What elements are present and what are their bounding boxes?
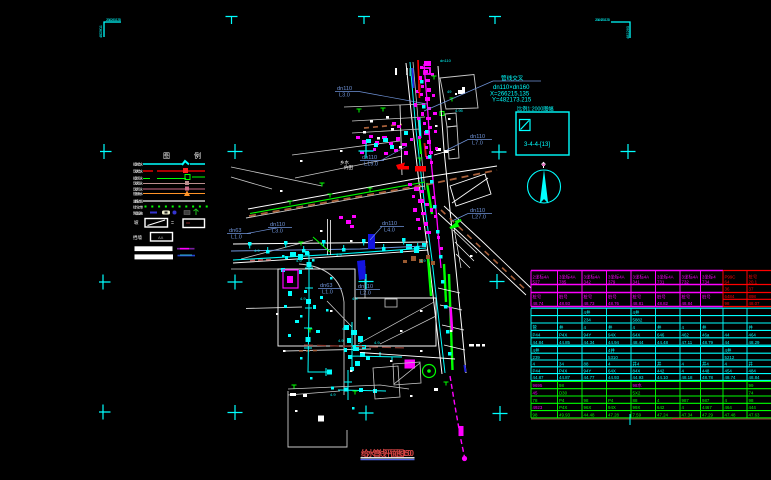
svg-text:4井: 4井 [633, 309, 640, 316]
svg-text:P4X: P4X [559, 405, 567, 410]
svg-text:P44: P44 [533, 368, 541, 373]
svg-text:47.28: 47.28 [608, 412, 620, 417]
svg-text:约田: 约田 [344, 164, 353, 171]
svg-text:L7.0: L7.0 [472, 141, 483, 147]
svg-text:48.76: 48.76 [608, 301, 620, 306]
svg-text:L3.0: L3.0 [272, 229, 283, 235]
svg-text:dn110: dn110 [470, 134, 485, 140]
svg-text:48.79: 48.79 [702, 340, 714, 345]
svg-text:464: 464 [749, 332, 757, 337]
svg-text:井4: 井4 [702, 361, 709, 368]
svg-text:98: 98 [725, 301, 730, 306]
svg-text:88: 88 [633, 398, 638, 403]
svg-text:646: 646 [657, 332, 665, 337]
svg-text:L27.0: L27.0 [472, 215, 486, 221]
svg-text:L19.0: L19.0 [364, 162, 378, 168]
svg-text:48.84: 48.84 [682, 301, 694, 306]
svg-text:4.9: 4.9 [296, 258, 302, 263]
svg-text:7.59: 7.59 [633, 412, 642, 417]
svg-text:734: 734 [702, 280, 710, 285]
svg-text:94Y: 94Y [584, 332, 592, 337]
svg-text:桩号: 桩号 [633, 294, 642, 301]
svg-text:给水管线平面图1:500: 给水管线平面图1:500 [361, 448, 415, 458]
svg-text:98: 98 [749, 398, 754, 403]
svg-text:规划雨水: 规划雨水 [133, 191, 143, 196]
svg-text:84X: 84X [633, 368, 641, 373]
svg-text:47.11: 47.11 [682, 340, 693, 345]
svg-text:4.9: 4.9 [254, 248, 260, 253]
svg-text:桩号: 桩号 [584, 294, 593, 301]
svg-text:47.24: 47.24 [657, 412, 669, 417]
svg-text:44.87: 44.87 [533, 375, 545, 380]
svg-text:48.73: 48.73 [584, 301, 596, 306]
svg-text:444: 444 [749, 405, 757, 410]
svg-text:44.77: 44.77 [584, 375, 596, 380]
svg-text:规划给水: 规划给水 [133, 162, 143, 167]
svg-text:P44: P44 [533, 332, 541, 337]
svg-text:44.48: 44.48 [657, 340, 669, 345]
svg-text:732: 732 [682, 280, 690, 285]
svg-text:64X: 64X [608, 368, 616, 373]
svg-text:98: 98 [533, 412, 538, 417]
svg-text:挡墙: 挡墙 [133, 234, 142, 241]
svg-text:井: 井 [749, 324, 754, 331]
svg-text:3-4-4-[13]: 3-4-4-[13] [524, 142, 550, 148]
svg-text:48.29: 48.29 [749, 340, 761, 345]
svg-text:785: 785 [559, 280, 567, 285]
svg-text:现状污水: 现状污水 [133, 187, 143, 192]
svg-text:dn63: dn63 [320, 283, 332, 289]
svg-text:482260: 482260 [625, 25, 630, 39]
svg-text:dn110: dn110 [337, 86, 352, 92]
svg-text:44.34: 44.34 [584, 340, 596, 345]
svg-text:47.48: 47.48 [725, 412, 737, 417]
svg-text:4467: 4467 [702, 405, 712, 410]
svg-text:88: 88 [584, 362, 589, 367]
svg-text:37: 37 [749, 287, 754, 292]
svg-text:266240.135: 266240.135 [106, 17, 122, 22]
svg-text:47.34: 47.34 [682, 412, 694, 417]
svg-text:48.82: 48.82 [657, 301, 669, 306]
svg-text:239: 239 [533, 355, 541, 360]
svg-text:454: 454 [725, 368, 733, 373]
svg-text:桩号: 桩号 [608, 294, 617, 301]
svg-text:井: 井 [749, 361, 754, 368]
svg-text:48.74: 48.74 [725, 375, 737, 380]
svg-text:48.74: 48.74 [533, 301, 545, 306]
svg-text:78: 78 [533, 398, 538, 403]
svg-text:4井: 4井 [584, 309, 591, 316]
svg-text:P4: P4 [608, 398, 614, 403]
svg-text:4井: 4井 [533, 347, 540, 354]
svg-text:448: 448 [702, 368, 710, 373]
svg-text:342: 342 [584, 280, 592, 285]
svg-text:44.84: 44.84 [533, 340, 545, 345]
svg-text:44.48: 44.48 [584, 412, 596, 417]
svg-text:L4.0: L4.0 [384, 228, 395, 234]
svg-text:4.9: 4.9 [300, 296, 306, 301]
svg-text:桩号: 桩号 [682, 294, 691, 301]
svg-text:L2.0: L2.0 [360, 291, 371, 297]
svg-text:9695: 9695 [533, 383, 543, 388]
svg-text:47.63: 47.63 [749, 412, 761, 417]
svg-text:48.93: 48.93 [559, 301, 571, 306]
svg-text:D30: D30 [559, 391, 568, 396]
svg-text:527: 527 [533, 280, 541, 285]
svg-text:48.81: 48.81 [633, 301, 645, 306]
svg-text:L1.0: L1.0 [322, 290, 333, 296]
svg-text:987: 987 [682, 398, 690, 403]
svg-text:48.44: 48.44 [633, 340, 645, 345]
svg-text:dn63: dn63 [229, 228, 241, 234]
svg-text:dn110: dn110 [382, 221, 397, 227]
svg-text:44.93: 44.93 [633, 375, 645, 380]
svg-text:4.9: 4.9 [336, 252, 342, 257]
svg-text:46a: 46a [702, 332, 710, 337]
svg-text:464: 464 [725, 405, 733, 410]
svg-text:规划污水: 规划污水 [133, 176, 143, 181]
svg-text:绿化带: 绿化带 [133, 205, 143, 210]
svg-text:桩号: 桩号 [559, 294, 568, 301]
svg-text:98水: 98水 [633, 382, 643, 388]
svg-text:442: 442 [657, 368, 665, 373]
svg-text:道路边线: 道路边线 [133, 199, 143, 204]
svg-text:P4: P4 [559, 398, 565, 403]
svg-text:Y=482173.215: Y=482173.215 [492, 98, 532, 104]
svg-text:5X2: 5X2 [633, 391, 641, 396]
svg-text:桩号: 桩号 [702, 294, 711, 301]
svg-text:井: 井 [559, 324, 564, 331]
svg-text:96X: 96X [584, 405, 592, 410]
svg-text:4.9: 4.9 [338, 338, 344, 343]
svg-text:4923: 4923 [533, 405, 543, 410]
svg-text:4.9: 4.9 [352, 296, 358, 301]
svg-text:898: 898 [749, 294, 757, 299]
svg-text:49: 49 [447, 89, 452, 94]
svg-text:44: 44 [725, 332, 730, 337]
svg-text:44.87: 44.87 [559, 375, 571, 380]
svg-text:P4X: P4X [559, 368, 567, 373]
svg-text:48.18: 48.18 [682, 375, 694, 380]
svg-text:49.93: 49.93 [559, 412, 571, 417]
svg-text:642: 642 [657, 405, 665, 410]
svg-text:482260.1: 482260.1 [98, 24, 103, 38]
svg-text:L1.0: L1.0 [231, 235, 242, 241]
svg-text:47.29: 47.29 [702, 412, 714, 417]
svg-text:94Y: 94Y [584, 368, 592, 373]
svg-text:AA: AA [158, 235, 164, 240]
svg-text:坡: 坡 [134, 219, 139, 226]
svg-text:99: 99 [749, 383, 754, 388]
svg-text:98: 98 [559, 383, 564, 388]
svg-text:36: 36 [725, 287, 730, 292]
svg-text:4.9: 4.9 [342, 326, 348, 331]
svg-text:附属设施: 附属设施 [133, 211, 143, 216]
svg-text:井: 井 [608, 324, 613, 331]
svg-text:44.93: 44.93 [608, 375, 620, 380]
svg-text:64X: 64X [633, 332, 641, 337]
svg-text:4.9: 4.9 [330, 392, 336, 397]
svg-text:桩号: 桩号 [657, 294, 666, 301]
svg-text:=: = [171, 221, 174, 227]
svg-text:现状雨水: 现状雨水 [133, 181, 143, 186]
svg-text:98: 98 [584, 398, 589, 403]
svg-text:桩号: 桩号 [533, 294, 542, 301]
svg-text:井: 井 [657, 324, 662, 331]
svg-text:井: 井 [702, 324, 707, 331]
svg-text:L3.0: L3.0 [339, 93, 350, 99]
svg-text:4.9: 4.9 [374, 340, 380, 345]
svg-text:44: 44 [725, 340, 730, 345]
svg-text:图 例: 图 例 [163, 151, 212, 160]
svg-text:4.9: 4.9 [420, 258, 426, 263]
svg-text:99X: 99X [633, 405, 641, 410]
svg-text:P4X: P4X [559, 332, 567, 337]
svg-text:dn110: dn110 [440, 58, 452, 63]
svg-text:现状给水: 现状给水 [133, 169, 143, 174]
svg-text:44.94: 44.94 [608, 340, 620, 345]
svg-text:管线交叉: 管线交叉 [501, 74, 524, 82]
svg-text:4.95: 4.95 [455, 108, 464, 113]
svg-text:48.78: 48.78 [702, 375, 714, 380]
svg-text:44.85: 44.85 [559, 340, 571, 345]
svg-text:20.1: 20.1 [749, 280, 758, 285]
svg-text:48.84: 48.84 [749, 375, 761, 380]
svg-text:dn110: dn110 [270, 222, 285, 228]
svg-text:266430.135: 266430.135 [595, 17, 611, 22]
svg-text:64: 64 [725, 280, 730, 285]
svg-text:4井: 4井 [725, 347, 732, 354]
svg-text:462: 462 [682, 332, 690, 337]
svg-text:48.07: 48.07 [749, 301, 761, 306]
svg-text:5310: 5310 [608, 355, 618, 360]
svg-text:5882: 5882 [633, 318, 643, 323]
svg-text:44.10: 44.10 [657, 375, 669, 380]
svg-text:dn110: dn110 [470, 208, 485, 214]
svg-text:94X: 94X [608, 332, 616, 337]
svg-text:管: 管 [533, 324, 538, 331]
svg-text:987: 987 [702, 398, 710, 403]
svg-text:5212: 5212 [725, 355, 735, 360]
svg-text:45: 45 [533, 391, 538, 396]
svg-text:94X: 94X [608, 405, 616, 410]
svg-text:4井: 4井 [608, 347, 615, 354]
svg-text:484: 484 [749, 368, 757, 373]
svg-text:379: 379 [608, 280, 616, 285]
svg-text:34: 34 [559, 362, 564, 367]
svg-text:74: 74 [749, 391, 754, 396]
svg-text:dn110: dn110 [362, 155, 377, 161]
svg-text:井: 井 [657, 361, 662, 368]
svg-text:731: 731 [657, 280, 665, 285]
svg-text:234: 234 [584, 318, 592, 323]
svg-text:井4: 井4 [633, 361, 640, 368]
svg-text:6484: 6484 [725, 294, 735, 299]
svg-text:341: 341 [633, 280, 641, 285]
svg-text:dn110×dn160: dn110×dn160 [493, 85, 530, 91]
